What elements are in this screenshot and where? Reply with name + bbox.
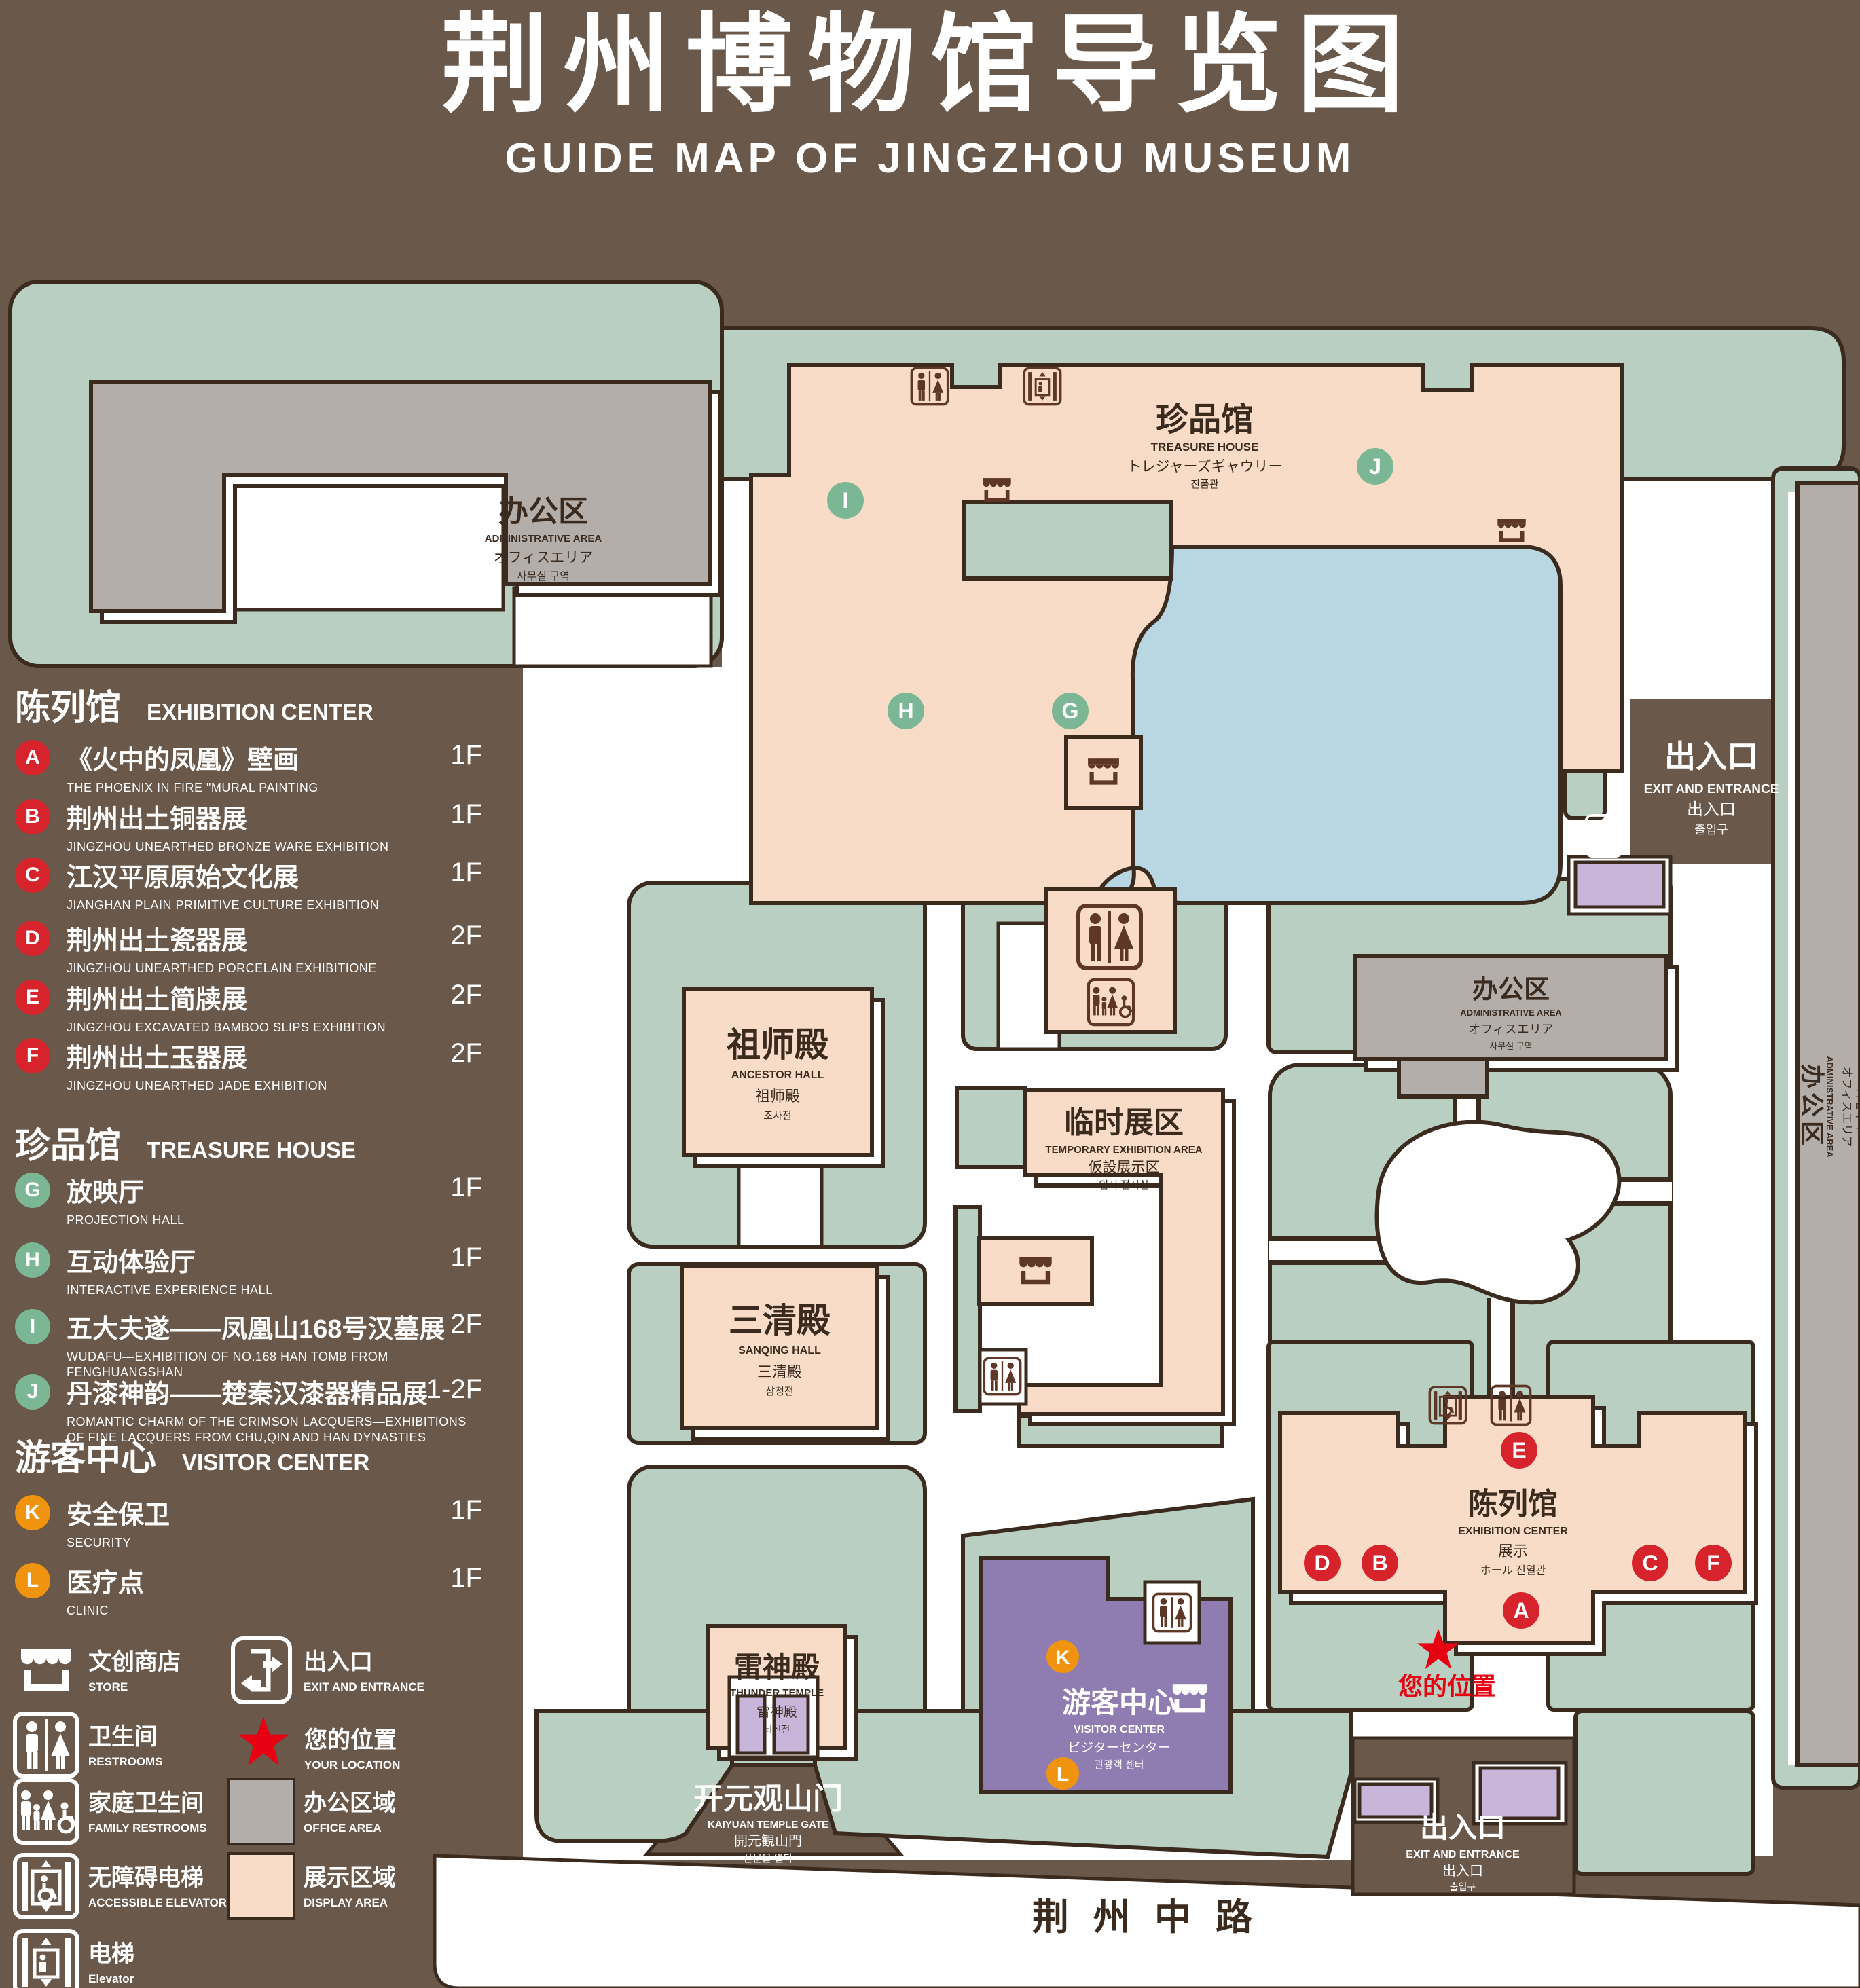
green-temp-l2 xyxy=(955,1207,980,1411)
marker-badge-K: K xyxy=(15,1495,50,1530)
restroom-icon xyxy=(12,1711,80,1779)
legend-item-H: H互动体验厅1F INTERACTIVE EXPERIENCE HALL xyxy=(15,1241,482,1298)
marker-E: E xyxy=(1501,1432,1537,1469)
svg-text:办公区: 办公区 xyxy=(1472,976,1550,1004)
svg-text:開元観山門: 開元観山門 xyxy=(734,1833,802,1849)
page-title: 荆州博物馆导览图 xyxy=(0,7,1860,125)
legend-section-treasure-house: 珍品馆TREASURE HOUSE xyxy=(15,1117,356,1168)
pond xyxy=(1096,547,1561,903)
green-south-right xyxy=(1575,1711,1753,1874)
admin-strip-label-ko: 사무실 구역 xyxy=(1855,1084,1860,1130)
office-area-swatch xyxy=(227,1778,295,1845)
svg-text:ビジターセンター: ビジターセンター xyxy=(1068,1740,1171,1755)
legend-item-D: D荆州出土瓷器展2F JINGZHOU UNEARTHED PORCELAIN … xyxy=(15,919,482,976)
marker-badge-C: C xyxy=(15,858,50,893)
legend-item-I: I五大夫遂——凤凰山168号汉墓展2F WUDAFU—EXHIBITION OF… xyxy=(15,1308,482,1380)
pond-green-terrace xyxy=(964,502,1171,578)
svg-text:オフィスエリア: オフィスエリア xyxy=(494,550,594,566)
svg-text:KAIYUAN TEMPLE GATE: KAIYUAN TEMPLE GATE xyxy=(708,1819,828,1830)
legend-section-visitor-center: 游客中心VISITOR CENTER xyxy=(15,1429,369,1480)
legend-symbol-restrooms: 卫生间RESTROOMS xyxy=(12,1711,80,1779)
legend-item-L: L医疗点1F CLINIC xyxy=(15,1562,482,1619)
svg-text:뇌신전: 뇌신전 xyxy=(764,1724,790,1735)
your-location-label: 您的位置 xyxy=(1398,1672,1496,1700)
marker-K: K xyxy=(1046,1640,1079,1673)
marker-badge-F: F xyxy=(15,1038,50,1073)
svg-text:展示: 展示 xyxy=(1498,1543,1528,1560)
svg-text:E: E xyxy=(1512,1438,1526,1462)
legend-symbol-location: 您的位置YOUR LOCATION xyxy=(236,1714,291,1769)
display-area-swatch xyxy=(227,1852,295,1920)
page-subtitle: GUIDE MAP OF JINGZHOU MUSEUM xyxy=(0,134,1860,183)
svg-text:THUNDER TEMPLE: THUNDER TEMPLE xyxy=(730,1687,824,1699)
svg-text:ホール 진열관: ホール 진열관 xyxy=(1480,1564,1546,1577)
legend-symbol-display-area: 展示区域DISPLAY AREA xyxy=(227,1852,295,1920)
legend-symbol-store: 文创商店STORE xyxy=(12,1636,80,1704)
marker-L: L xyxy=(1046,1757,1079,1790)
legend-section-exhibition-center: 陈列馆EXHIBITION CENTER xyxy=(15,679,373,730)
marker-D: D xyxy=(1304,1545,1341,1581)
svg-text:조사전: 조사전 xyxy=(763,1110,791,1122)
elevator-icon xyxy=(12,1928,80,1988)
svg-text:삼청전: 삼청전 xyxy=(765,1386,793,1397)
svg-text:EXHIBITION CENTER: EXHIBITION CENTER xyxy=(1458,1526,1568,1537)
marker-H: H xyxy=(888,693,924,729)
visitor-center-building xyxy=(981,1558,1230,1792)
admin-east-strip: 办公区 ADMINISTRATIVE AREA オフィスエリア 사무실 구역 xyxy=(1798,483,1860,1765)
marker-C: C xyxy=(1632,1545,1668,1581)
svg-text:祖师殿: 祖师殿 xyxy=(727,1026,828,1064)
svg-text:K: K xyxy=(1055,1646,1070,1669)
svg-text:出入口: 出入口 xyxy=(1420,1811,1506,1843)
legend-item-K: K安全保卫1F SECURITY xyxy=(15,1494,482,1551)
store-icon xyxy=(12,1636,80,1704)
svg-text:A: A xyxy=(1513,1598,1529,1623)
exit-east-label: 出入口 EXIT AND ENTRANCE 出入口 출입구 xyxy=(1644,739,1779,836)
legend-item-E: E荆州出土简牍展2F JINGZHOU EXCAVATED BAMBOO SLI… xyxy=(15,978,482,1035)
svg-text:三清殿: 三清殿 xyxy=(729,1302,831,1340)
svg-text:开元观山门: 开元观山门 xyxy=(693,1782,843,1816)
svg-text:临时展区: 临时展区 xyxy=(1064,1106,1184,1139)
svg-text:J: J xyxy=(1369,454,1381,479)
marker-badge-J: J xyxy=(15,1374,50,1410)
svg-text:雷神殿: 雷神殿 xyxy=(756,1704,797,1720)
svg-text:雷神殿: 雷神殿 xyxy=(734,1651,820,1683)
svg-text:VISITOR CENTER: VISITOR CENTER xyxy=(1074,1724,1165,1735)
svg-text:D: D xyxy=(1314,1551,1330,1575)
guide-map-poster: 办公区 ADMINISTRATIVE AREA オフィスエリア 사무실 구역 xyxy=(0,0,1860,1988)
svg-text:出入口: 出入口 xyxy=(1664,739,1758,774)
family-restroom-icon xyxy=(12,1778,80,1845)
legend-symbol-office-area: 办公区域OFFICE AREA xyxy=(227,1778,295,1845)
svg-text:陈列馆: 陈列馆 xyxy=(1468,1488,1558,1521)
svg-text:사무실 구역: 사무실 구역 xyxy=(1489,1041,1532,1051)
treasure-store-kiosk xyxy=(1066,737,1141,808)
gate-structure xyxy=(1575,862,1664,907)
svg-text:SANQING HALL: SANQING HALL xyxy=(738,1345,821,1357)
marker-badge-G: G xyxy=(15,1173,50,1208)
legend-symbol-family-restrooms: 家庭卫生间FAMILY RESTROOMS xyxy=(12,1778,80,1845)
svg-text:办公区: 办公区 xyxy=(498,495,588,528)
marker-badge-L: L xyxy=(15,1563,50,1598)
svg-text:출입구: 출입구 xyxy=(1694,823,1728,836)
marker-F: F xyxy=(1695,1545,1732,1581)
svg-text:진품관: 진품관 xyxy=(1190,479,1219,490)
marker-J: J xyxy=(1357,448,1393,485)
marker-badge-I: I xyxy=(15,1309,50,1344)
svg-text:B: B xyxy=(1372,1551,1387,1575)
svg-text:祖师殿: 祖师殿 xyxy=(755,1088,800,1105)
svg-text:出入口: 出入口 xyxy=(1687,800,1736,819)
admin-strip-label-en: ADMINISTRATIVE AREA xyxy=(1825,1056,1835,1158)
svg-text:出入口: 出入口 xyxy=(1442,1863,1483,1879)
legend-symbol-accessible-elevator: 无障碍电梯ACCESSIBLE ELEVATOR xyxy=(12,1852,80,1920)
admin-strip-label-zh: 办公区 xyxy=(1798,1064,1826,1149)
legend-item-B: B荆州出土铜器展1F JINGZHOU UNEARTHED BRONZE WAR… xyxy=(15,798,482,855)
marker-badge-B: B xyxy=(15,799,50,834)
svg-text:TEMPORARY EXHIBITION AREA: TEMPORARY EXHIBITION AREA xyxy=(1045,1144,1202,1156)
admin-strip-label-ja: オフィスエリア xyxy=(1840,1067,1853,1147)
svg-text:EXIT AND ENTRANCE: EXIT AND ENTRANCE xyxy=(1644,782,1779,796)
svg-text:仮設展示区: 仮設展示区 xyxy=(1089,1160,1160,1175)
svg-text:사무실 구역: 사무실 구역 xyxy=(517,570,570,583)
svg-text:オフィスエリア: オフィスエリア xyxy=(1468,1023,1554,1036)
legend-item-C: C江汉平原原始文化展1F JIANGHAN PLAIN PRIMITIVE CU… xyxy=(15,856,482,913)
svg-text:산문을 열다: 산문을 열다 xyxy=(743,1853,792,1864)
location-star-icon xyxy=(236,1714,291,1769)
svg-text:C: C xyxy=(1642,1551,1658,1575)
svg-text:H: H xyxy=(898,699,913,723)
svg-text:トレジャーズギャウリー: トレジャーズギャウリー xyxy=(1127,459,1283,475)
svg-text:임시 전시실: 임시 전시실 xyxy=(1099,1179,1148,1191)
svg-text:L: L xyxy=(1057,1763,1069,1786)
marker-A: A xyxy=(1503,1592,1539,1629)
marker-badge-A: A xyxy=(15,740,50,775)
elevator-icon xyxy=(1024,368,1060,404)
svg-text:珍品馆: 珍品馆 xyxy=(1156,402,1254,438)
svg-text:TREASURE HOUSE: TREASURE HOUSE xyxy=(1151,441,1259,454)
road-name: 荆州中路 xyxy=(1032,1897,1277,1938)
marker-G: G xyxy=(1052,693,1089,729)
svg-text:三清殿: 三清殿 xyxy=(757,1363,802,1380)
legend-item-A: A《火中的凤凰》壁画1F THE PHOENIX IN FIRE "MURAL … xyxy=(15,739,482,796)
legend-symbol-elevator: 电梯Elevator xyxy=(12,1928,80,1988)
marker-badge-E: E xyxy=(15,980,50,1015)
marker-I: I xyxy=(827,482,864,519)
svg-text:F: F xyxy=(1707,1551,1720,1575)
legend-symbol-exit: 出入口EXIT AND ENTRANCE xyxy=(227,1636,295,1704)
legend-item-G: G放映厅1F PROJECTION HALL xyxy=(15,1171,482,1228)
exit-icon xyxy=(227,1636,295,1704)
marker-badge-H: H xyxy=(15,1242,50,1278)
accessible-elevator-icon xyxy=(12,1852,80,1920)
temp-store-kiosk xyxy=(979,1238,1092,1304)
svg-text:ADMINISTRATIVE AREA: ADMINISTRATIVE AREA xyxy=(485,533,602,545)
restroom-pavilion xyxy=(1046,889,1175,1032)
header: 荆州博物馆导览图 GUIDE MAP OF JINGZHOU MUSEUM xyxy=(0,7,1860,183)
svg-text:ANCESTOR HALL: ANCESTOR HALL xyxy=(731,1069,824,1081)
svg-text:관광객 센터: 관광객 센터 xyxy=(1094,1759,1144,1771)
marker-badge-D: D xyxy=(15,921,50,956)
svg-text:출입구: 출입구 xyxy=(1450,1881,1476,1892)
svg-text:G: G xyxy=(1062,699,1079,723)
svg-text:EXIT AND ENTRANCE: EXIT AND ENTRANCE xyxy=(1406,1849,1520,1860)
svg-text:ADMINISTRATIVE AREA: ADMINISTRATIVE AREA xyxy=(1460,1008,1562,1018)
green-temp-l1 xyxy=(957,1088,1025,1167)
marker-B: B xyxy=(1362,1545,1398,1581)
legend-item-F: F荆州出土玉器展2F JINGZHOU UNEARTHED JADE EXHIB… xyxy=(15,1037,482,1094)
svg-text:游客中心: 游客中心 xyxy=(1062,1687,1176,1718)
svg-text:I: I xyxy=(843,488,849,513)
